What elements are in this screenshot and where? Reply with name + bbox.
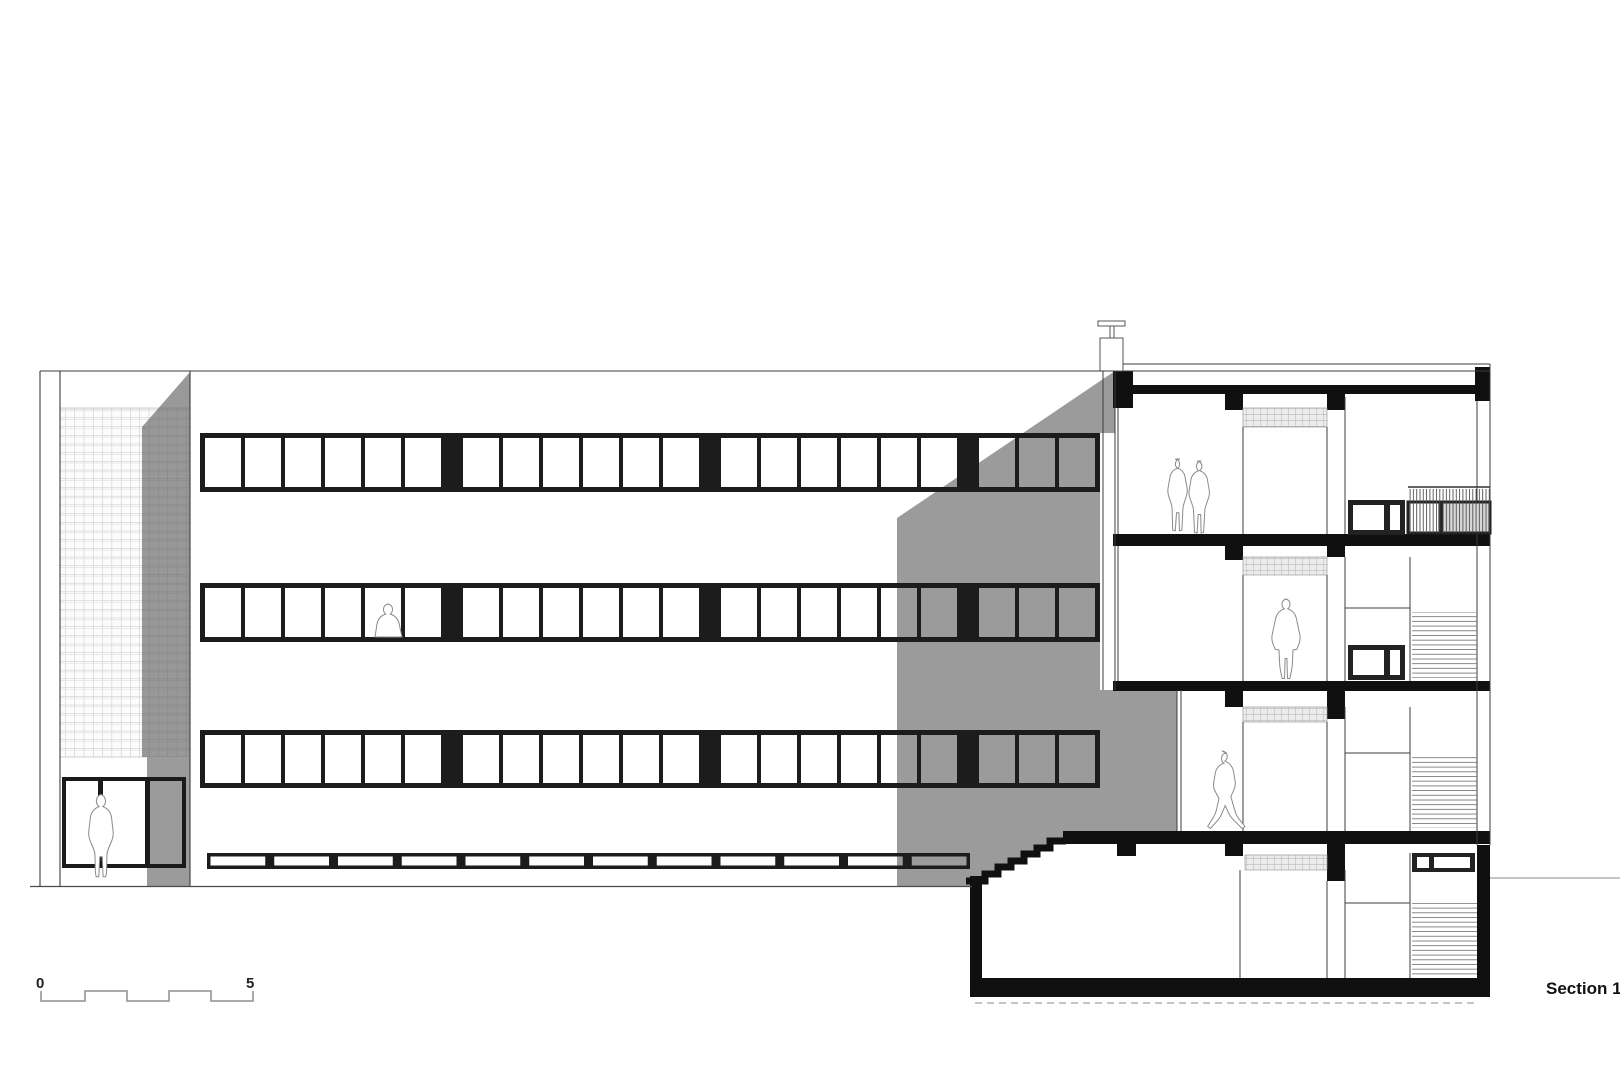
architectural-section-drawing: 0 5 Section 1-1 — [0, 0, 1620, 1080]
annex-shadow-upper — [142, 372, 190, 757]
roof-parapet-right — [1475, 367, 1490, 401]
architectural-section-sheet: 0 5 Section 1-1 — [0, 0, 1620, 1080]
second-floor-slab — [1113, 681, 1490, 691]
scale-start-label: 0 — [36, 975, 44, 992]
basement-right-wall — [1477, 845, 1490, 997]
scale-end-label: 5 — [246, 975, 254, 992]
third-floor-slab — [1113, 534, 1490, 546]
ground-floor-slab — [1063, 831, 1490, 844]
basement-interior — [982, 844, 1477, 978]
section-title: Section 1-1 — [1546, 979, 1620, 998]
balcony-railing — [1408, 487, 1490, 533]
stair-treads — [1412, 612, 1477, 976]
roof-parapet-left — [1113, 371, 1133, 408]
entrance-threshold-block — [1117, 844, 1136, 856]
roof-slab — [1113, 385, 1490, 394]
foundation-slab — [970, 978, 1490, 997]
